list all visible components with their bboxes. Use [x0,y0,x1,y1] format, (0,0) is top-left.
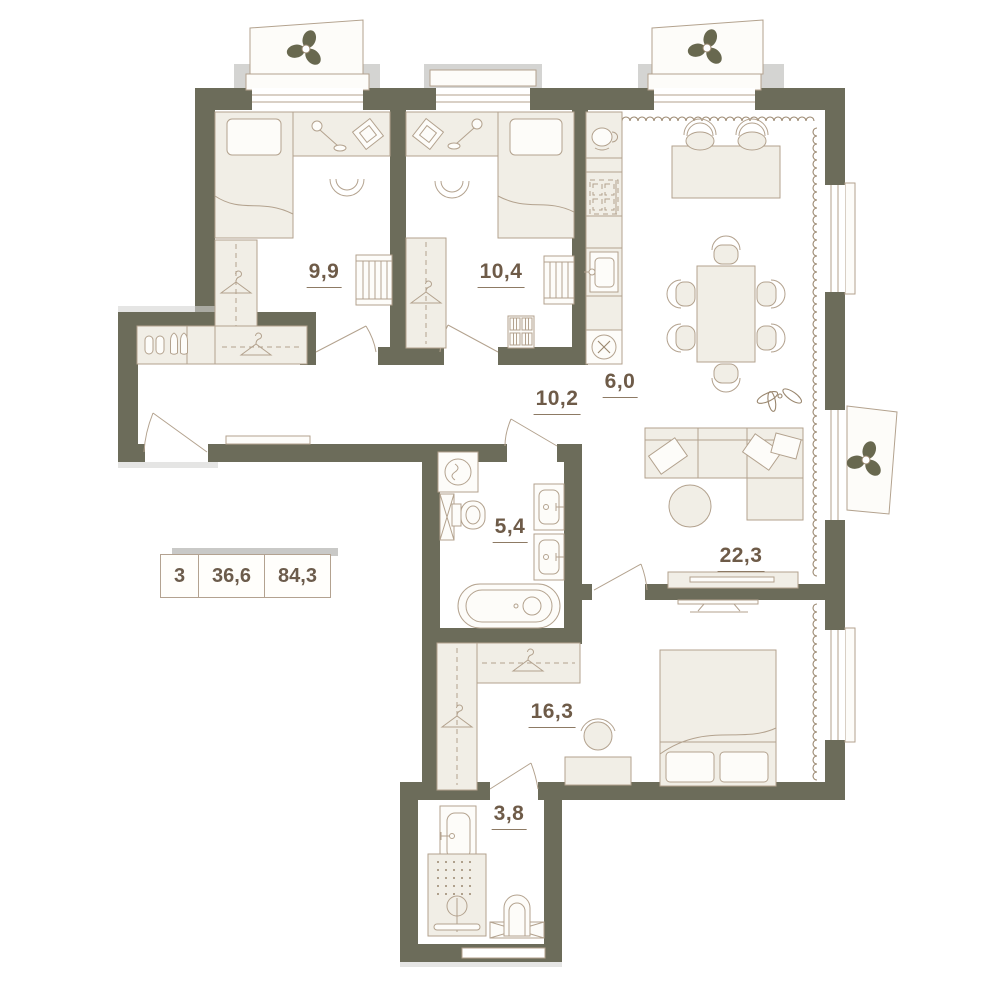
bathroom-door-arc [505,419,557,446]
hallway-furniture [137,326,310,444]
bedroom-2-door-arc [440,325,498,352]
floor-plan-page: 9,9 10,4 6,0 10,2 5,4 22,3 16,3 3,8 3 36… [0,0,1000,1000]
doormat-icon [226,436,310,444]
toilet-icon [452,501,485,529]
pillow-icon [720,752,768,782]
bathtub-icon [458,584,560,628]
room-label-living-room: 22,3 [718,544,765,572]
washbasin-icon [534,484,564,530]
pillow-icon [510,119,562,155]
bedroom-2-furniture [406,112,574,348]
shower-room-fixtures [428,806,544,938]
dining-chair-icon [667,324,695,352]
balcony-top-middle [424,64,542,88]
desk-chair-icon [435,181,469,198]
room-label-shower-room: 3,8 [492,802,527,830]
pillow-icon [666,752,714,782]
tv-icon [678,600,758,612]
bookshelf-icon [508,316,534,348]
legend-total-area: 84,3 [264,555,330,597]
dining-chair-icon [757,324,785,352]
legend-rooms-count: 3 [161,555,198,597]
room-label-bedroom-2: 10,4 [478,260,525,288]
kitchen-furniture [584,112,804,412]
plant-icon [756,386,804,412]
armchair-icon [581,719,615,750]
room-label-corridor: 10,2 [534,387,581,415]
crib-icon [544,256,574,304]
room-label-bedroom-1: 9,9 [307,260,342,288]
dresser [565,757,631,785]
desk-chair-icon [330,179,364,196]
coffee-table-icon [669,485,711,527]
crib-icon [356,255,392,305]
room-label-kitchen: 6,0 [603,370,638,398]
bedroom-1-door-arc [316,326,376,352]
dining-chair-icon [757,280,785,308]
bar-stool-icon [684,119,716,150]
room-label-bedroom-3: 16,3 [529,700,576,728]
legend-living-area: 36,6 [198,555,264,597]
washing-machine-icon [438,452,478,492]
bar-stool-icon [736,119,768,150]
dining-chair-icon [667,280,695,308]
balcony-right [842,406,897,514]
room-label-bathroom: 5,4 [493,515,528,543]
shower-icon [428,854,486,936]
shower-room-door-arc [490,763,538,789]
tv-icon [690,577,774,582]
dining-table-icon [697,266,755,362]
extractor-fan-icon [586,330,622,364]
kitchen-island [672,146,780,198]
entry-door-arc [144,413,207,452]
dining-chair-icon [712,236,740,264]
bedroom-1-furniture [215,112,392,330]
toilet-icon [490,895,544,938]
floor-plan [0,0,1000,1000]
area-legend: 3 36,6 84,3 [160,554,331,598]
dining-chair-icon [712,364,740,392]
bedroom-3-door-arc [594,564,647,590]
washbasin-icon [534,534,564,580]
pillow-icon [227,119,281,155]
